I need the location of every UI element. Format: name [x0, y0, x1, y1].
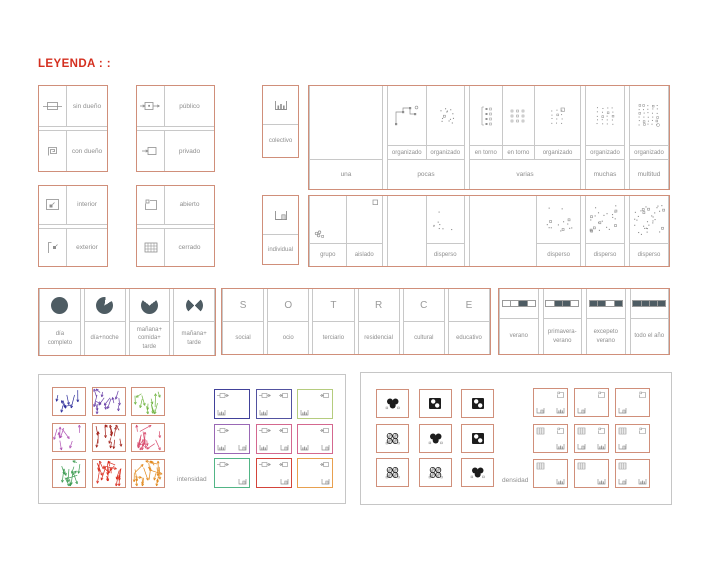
quantity-cell [310, 86, 382, 159]
use-column-educativo: Eeducativo [448, 289, 490, 354]
quantity-cell-icon [535, 86, 580, 146]
cerrado-slot [577, 462, 586, 470]
icon-cell [39, 86, 67, 126]
colectivo-icon [217, 409, 226, 416]
intensity-combo-box [297, 389, 333, 419]
season-bar-cell [544, 289, 582, 319]
quantity-category-label: multitud [630, 159, 668, 189]
time-column: día completo [39, 289, 81, 355]
cluster-solid-icon [384, 397, 401, 410]
arrow-scribble-icon [132, 388, 164, 415]
quantity-cell-disperso: disperso [586, 196, 624, 266]
icon-cell [137, 86, 165, 126]
individual-icon [238, 444, 247, 451]
organizado-scatter-icon [433, 106, 457, 126]
cerrado-label: cerrado [165, 229, 214, 267]
quantity-cells: disperso [630, 196, 668, 266]
season-bar-segment [641, 301, 649, 306]
privado-slot [320, 392, 330, 399]
exterior-icon [46, 241, 59, 254]
privado-label: privado [165, 131, 214, 171]
density-combo-box [533, 388, 568, 417]
privado-icon [320, 392, 330, 399]
disperso-icon [540, 204, 578, 236]
publico-icon [140, 100, 162, 112]
abierto-icon [143, 198, 159, 211]
organizado-grid-icon [637, 103, 661, 128]
quantity-column-una: una [309, 86, 383, 189]
cluster-solid-icon [427, 432, 444, 445]
abierto-slot [556, 391, 565, 399]
privado-icon [142, 145, 159, 157]
cerrado-icon [536, 427, 545, 435]
publico-slot [259, 461, 271, 468]
colectivo-slot [259, 444, 268, 451]
individual-box: individual [262, 195, 299, 265]
publico-icon [217, 427, 229, 434]
privado-icon [320, 427, 330, 434]
icon-cell [137, 131, 165, 171]
quantity-column-pocas: organizadoorganizadopocas [387, 86, 465, 189]
colectivo-icon [556, 407, 565, 414]
quantity-cell-icon [347, 196, 383, 244]
quantity-column-varias: en tornoen tornoorganizadovarias [469, 86, 581, 189]
quantity-cell-en-torno: en torno [470, 86, 502, 159]
quantity-cells: disperso [470, 196, 580, 266]
season-bar-segment [510, 301, 518, 306]
use-label: cultural [404, 322, 444, 354]
abierto-icon [556, 391, 565, 399]
quantity-column-varias: disperso [469, 196, 581, 266]
use-letter: R [375, 300, 382, 311]
icon-cell [39, 229, 67, 267]
quantity-cell-icon [470, 86, 502, 146]
intensity-scribble-box [131, 423, 165, 452]
quantity-cell-label: organizado [535, 146, 580, 159]
quantity-cell-label: en torno [503, 146, 535, 159]
season-bar-segment [562, 301, 570, 306]
quantity-cell-aislado: aislado [346, 196, 383, 266]
density-label: densidad [502, 477, 528, 484]
colectivo-label: colectivo [263, 125, 298, 157]
organizado-path-icon [393, 104, 421, 128]
colectivo-icon [300, 444, 309, 451]
ownership-grid-acceso: públicoprivado [136, 85, 215, 172]
ownership-grid-posicion: interiorexterior [38, 185, 108, 267]
time-column: mañana+ tarde [173, 289, 215, 355]
disperso-icon [632, 203, 666, 237]
arrow-scribble-icon [53, 460, 85, 487]
abierto-icon [597, 427, 606, 435]
density-icon-box [376, 424, 409, 453]
cluster-pattern-icon [384, 466, 401, 479]
privado-icon [279, 461, 289, 468]
colectivo-icon-cell [263, 86, 298, 125]
intensity-combo-box [214, 458, 250, 488]
privado-icon [279, 427, 289, 434]
density-icon-box [461, 389, 494, 418]
use-label: ocio [268, 322, 308, 354]
con-dueno-icon [46, 145, 59, 157]
individual-icon [280, 444, 289, 451]
use-letter: C [420, 300, 427, 311]
quantity-column-multitud: disperso [629, 196, 669, 266]
season-bar-segment [605, 301, 613, 306]
density-combo-box [615, 459, 650, 488]
colectivo-slot [556, 443, 565, 450]
individual-icon [273, 209, 289, 221]
quantity-column-multitud: organizadomultitud [629, 86, 669, 189]
square-holes-icon [427, 397, 443, 410]
quantity-cell-grupo: grupo [310, 196, 346, 266]
quantity-cell-label: organizado [586, 146, 624, 159]
season-bar-segment [518, 301, 526, 306]
time-label: mañana+ tarde [174, 322, 214, 355]
con-dueno-label: con dueño [67, 131, 107, 171]
icon-cell [137, 186, 165, 224]
quantity-cell-icon [310, 86, 382, 146]
publico-icon [259, 427, 271, 434]
quantity-cell-label: organizado [388, 146, 426, 159]
density-icon-box [376, 389, 409, 418]
intensity-combo-box [256, 389, 292, 419]
individual-slot [238, 444, 247, 451]
privado-slot [279, 461, 289, 468]
quantity-grid-individual: grupoaisladodispersodispersodispersodisp… [308, 195, 670, 267]
quantity-cell-icon [586, 196, 624, 244]
intensity-scribble-box [92, 459, 126, 488]
publico-icon [217, 392, 229, 399]
colectivo-slot [300, 444, 309, 451]
publico-slot [259, 392, 271, 399]
grupo-icon [313, 229, 325, 240]
quantity-cells: disperso [586, 196, 624, 266]
quantity-category-label: una [310, 159, 382, 189]
intensity-scribble-box [52, 459, 86, 488]
quantity-cells: en tornoen tornoorganizado [470, 86, 580, 159]
time-of-day-grid: día completodía+nochemañana+ comida+ tar… [38, 288, 216, 356]
quantity-cell-organizado: organizado [630, 86, 668, 159]
arrow-scribble-icon [93, 460, 125, 487]
colectivo-icon [556, 443, 565, 450]
cerrado-slot [536, 462, 545, 470]
abierto-slot [597, 427, 606, 435]
season-label: todo el año [631, 319, 669, 354]
intensity-label: intensidad [177, 476, 207, 483]
legend-row-privado: privado [137, 131, 214, 171]
quantity-cell-label: grupo [310, 244, 346, 266]
season-column: verano [499, 289, 539, 354]
density-icon-box [419, 458, 452, 487]
season-bar-segment [657, 301, 665, 306]
quantity-cells: organizadoorganizado [388, 86, 464, 159]
individual-slot [321, 444, 330, 451]
publico-slot [259, 427, 271, 434]
en-torno-bracket-icon [476, 104, 496, 128]
quantity-cell-organizado: organizado [586, 86, 624, 159]
use-column-ocio: Oocio [267, 289, 309, 354]
individual-icon [536, 407, 545, 414]
quantity-column-una: grupoaislado [309, 196, 383, 266]
use-column-terciario: Tterciario [312, 289, 354, 354]
time-column: mañana+ comida+ tarde [129, 289, 171, 355]
abierto-slot [638, 391, 647, 399]
arrow-scribble-icon [132, 460, 164, 487]
quantity-cell-label: disperso [537, 244, 580, 266]
time-label: día+noche [85, 322, 125, 355]
individual-slot [536, 407, 545, 414]
quantity-cell-icon [586, 86, 624, 146]
individual-slot [280, 444, 289, 451]
individual-icon [321, 478, 330, 485]
cluster-pattern-icon [384, 432, 401, 445]
individual-icon [321, 444, 330, 451]
season-bar-segment [597, 301, 605, 306]
cerrado-icon [618, 462, 627, 470]
individual-icon [618, 443, 627, 450]
legend-row-interior: interior [39, 186, 107, 224]
cerrado-slot [618, 427, 627, 435]
individual-slot [238, 478, 247, 485]
quantity-category-label: varias [470, 159, 580, 189]
intensity-scribble-box [131, 459, 165, 488]
quantity-cell-label: disperso [630, 244, 668, 266]
density-icon-box [461, 458, 494, 487]
season-bar-segment [503, 301, 510, 306]
legend-row-cerrado: cerrado [137, 229, 214, 267]
individual-icon [618, 407, 627, 414]
density-icon-box [419, 424, 452, 453]
pie-three-part-icon [141, 297, 158, 314]
quantity-cell-organizado: organizado [534, 86, 580, 159]
use-letter: T [330, 300, 336, 311]
quantity-category-label: muchas [586, 159, 624, 189]
season-bar-segment [546, 301, 553, 306]
intensity-scribble-box [52, 423, 86, 452]
season-label: primavera- verano [544, 319, 582, 354]
season-bar-icon [502, 300, 536, 307]
use-letter-cell: S [223, 289, 263, 322]
individual-slot [577, 443, 586, 450]
season-bar-icon [632, 300, 666, 307]
pie-full-icon [51, 297, 68, 314]
cluster-pattern-icon [427, 466, 444, 479]
sin-dueno-label: sin dueño [67, 86, 107, 126]
use-letter: O [284, 300, 292, 311]
ownership-grid-dueno: sin dueñocon dueño [38, 85, 108, 172]
quantity-cell-label: disperso [586, 244, 624, 266]
density-combo-box [533, 424, 568, 453]
legend-row-sin-dueno: sin dueño [39, 86, 107, 126]
season-column: todo el año [630, 289, 670, 354]
intensity-combo-box [214, 424, 250, 454]
quantity-cell-disperso: disperso [426, 196, 465, 266]
intensity-combo-box [256, 424, 292, 454]
publico-slot [217, 392, 229, 399]
quantity-cell-label: en torno [470, 146, 502, 159]
exterior-label: exterior [67, 229, 107, 267]
arrow-scribble-icon [132, 424, 164, 451]
density-combo-box [574, 424, 609, 453]
privado-slot [320, 461, 330, 468]
abierto-label: abierto [165, 186, 214, 224]
colectivo-icon [300, 409, 309, 416]
colectivo-slot [556, 478, 565, 485]
privado-slot [279, 427, 289, 434]
arrow-scribble-icon [93, 424, 125, 451]
cerrado-icon [536, 462, 545, 470]
seasons-grid: veranoprimavera- veranoexcepeto veranoto… [498, 288, 670, 355]
pie-two-part-icon [186, 297, 203, 314]
time-label: mañana+ comida+ tarde [130, 322, 170, 355]
intensity-scribble-box [52, 387, 86, 416]
quantity-column-muchas: disperso [585, 196, 625, 266]
quantity-cell-organizado: organizado [388, 86, 426, 159]
legend-row-abierto: abierto [137, 186, 214, 224]
season-bar-cell [631, 289, 669, 319]
use-label: residencial [359, 322, 399, 354]
use-label: educativo [449, 322, 489, 354]
square-holes-icon [470, 397, 486, 410]
season-bar-icon [589, 300, 623, 307]
use-letter-cell: T [313, 289, 353, 322]
quantity-cell-icon [470, 196, 536, 244]
time-column: día+noche [84, 289, 126, 355]
individual-slot [321, 478, 330, 485]
individual-icon [577, 443, 586, 450]
colectivo-slot [556, 407, 565, 414]
use-column-social: Ssocial [222, 289, 264, 354]
season-label: verano [500, 319, 538, 354]
colectivo-icon [273, 99, 289, 111]
colectivo-icon [556, 478, 565, 485]
quantity-cell-icon [310, 196, 346, 244]
cerrado-icon [618, 427, 627, 435]
abierto-slot [638, 427, 647, 435]
privado-slot [320, 427, 330, 434]
density-icon-box [461, 424, 494, 453]
abierto-slot [597, 391, 606, 399]
season-bar-segment [649, 301, 657, 306]
season-bar-segment [554, 301, 562, 306]
intensity-combo-box [297, 458, 333, 488]
organizado-grid-icon [549, 106, 567, 126]
publico-slot [217, 427, 229, 434]
interior-label: interior [67, 186, 107, 224]
colectivo-slot [597, 478, 606, 485]
icon-cell [137, 229, 165, 267]
use-column-cultural: Ccultural [403, 289, 445, 354]
quantity-cell-icon [630, 196, 668, 244]
arrow-scribble-icon [53, 388, 85, 415]
individual-slot [280, 478, 289, 485]
use-letter: S [240, 300, 247, 311]
use-label: terciario [313, 322, 353, 354]
quantity-category-label: pocas [388, 159, 464, 189]
season-bar-cell [500, 289, 538, 319]
publico-slot [217, 461, 229, 468]
legend-row-exterior: exterior [39, 229, 107, 267]
cerrado-slot [536, 427, 545, 435]
colectivo-slot [259, 409, 268, 416]
colectivo-icon [259, 409, 268, 416]
quantity-cell-icon [630, 86, 668, 146]
intensity-scribble-box [92, 423, 126, 452]
cerrado-icon [144, 242, 158, 253]
quantity-cells: organizado [586, 86, 624, 159]
cerrado-icon [577, 462, 586, 470]
density-icon-box [376, 458, 409, 487]
individual-label: individual [263, 235, 298, 264]
quantity-cell [388, 196, 426, 266]
publico-icon [259, 392, 271, 399]
quantity-cell-icon [537, 196, 580, 244]
intensity-combo-box [214, 389, 250, 419]
season-bar-icon [545, 300, 579, 307]
disperso-icon [430, 204, 460, 236]
privado-icon [279, 392, 289, 399]
colectivo-icon [638, 478, 647, 485]
cerrado-slot [577, 427, 586, 435]
density-icon-box [419, 389, 452, 418]
legend-row-con-dueno: con dueño [39, 131, 107, 171]
quantity-cell-label: aislado [347, 244, 383, 266]
density-combo-box [615, 388, 650, 417]
disperso-icon [588, 203, 622, 237]
cerrado-slot [618, 462, 627, 470]
season-bar-segment [633, 301, 640, 306]
intensity-scribble-box [92, 387, 126, 416]
colectivo-slot [217, 409, 226, 416]
abierto-slot [556, 427, 565, 435]
intensity-combo-box [256, 458, 292, 488]
pie-day-night-icon [96, 297, 113, 314]
square-holes-icon [470, 432, 486, 445]
colectivo-slot [217, 444, 226, 451]
quantity-cells: grupoaislado [310, 196, 382, 266]
quantity-cell-disperso: disperso [630, 196, 668, 266]
colectivo-slot [300, 409, 309, 416]
interior-icon [45, 198, 60, 211]
density-combo-box [533, 459, 568, 488]
quantity-cells: disperso [388, 196, 464, 266]
individual-slot [618, 407, 627, 414]
season-bar-cell [587, 289, 625, 319]
privado-slot [279, 392, 289, 399]
quantity-cell-organizado: organizado [426, 86, 465, 159]
cerrado-icon [577, 427, 586, 435]
season-bar-segment [527, 301, 535, 306]
page-title: LEYENDA : : [38, 58, 111, 70]
pie-cell [85, 289, 125, 322]
season-bar-segment [590, 301, 597, 306]
individual-icon [618, 478, 627, 485]
abierto-icon [638, 427, 647, 435]
use-letter: E [466, 300, 473, 311]
quantity-cell-en-torno: en torno [502, 86, 535, 159]
en-torno-grid-icon [509, 108, 527, 124]
quantity-cell-icon [427, 196, 465, 244]
legend-canvas: LEYENDA : : sin dueñocon dueño públicopr… [0, 0, 709, 567]
individual-slot [618, 443, 627, 450]
quantity-cell-icon [503, 86, 535, 146]
colectivo-icon [259, 444, 268, 451]
individual-icon [577, 407, 586, 414]
quantity-cell [470, 196, 536, 266]
quantity-column-pocas: disperso [387, 196, 465, 266]
uses-grid: SsocialOocioTterciarioRresidencialCcultu… [221, 288, 491, 355]
icon-cell [39, 131, 67, 171]
